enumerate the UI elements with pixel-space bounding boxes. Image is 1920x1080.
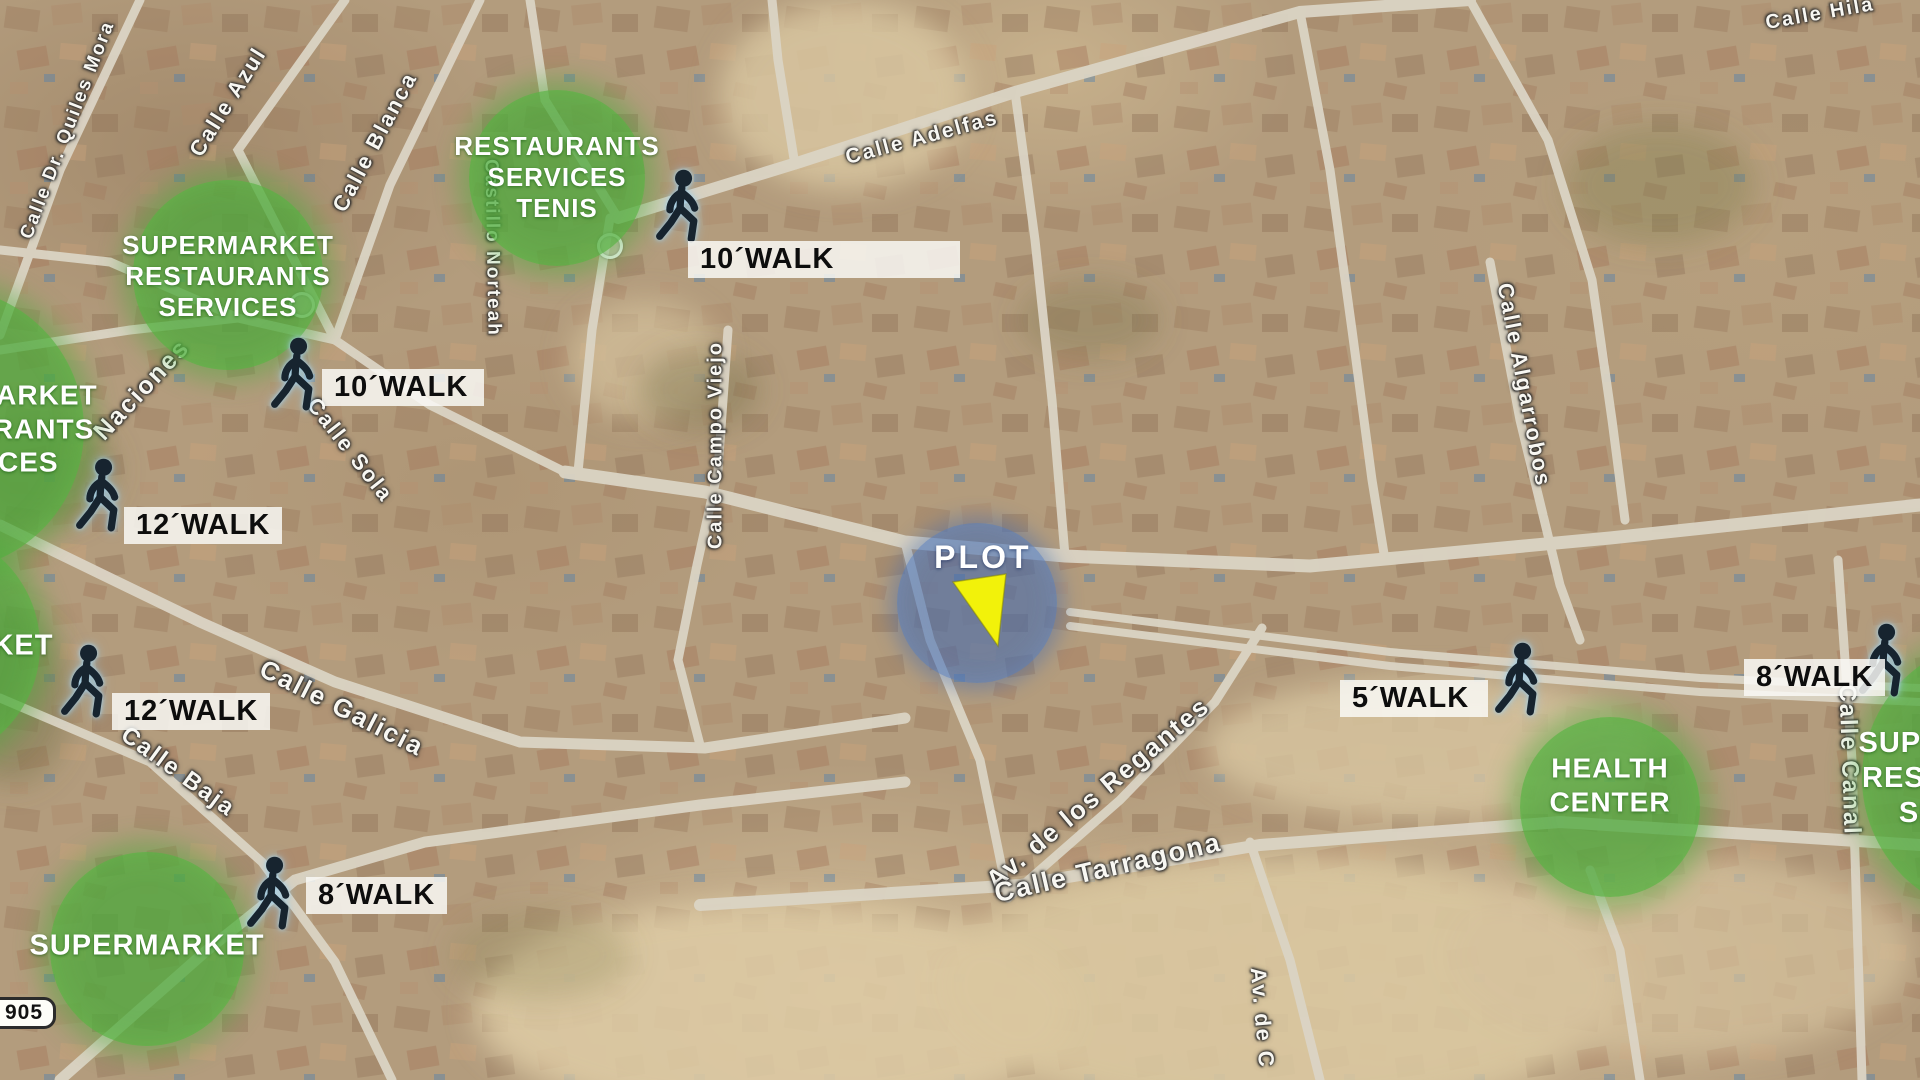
walk-10-left-label: 10´WALK (322, 369, 484, 406)
walk-10-top-label: 10´WALK (688, 241, 960, 278)
amenity-label-restaurants-tenis-nw: RESTAURANTSSERVICESTENIS (454, 131, 660, 225)
walking-person-icon (243, 850, 301, 942)
walk-8-sw-label: 8´WALK (306, 877, 447, 914)
plot-label: PLOT (934, 539, 1031, 576)
walk-8-right-label: 8´WALK (1744, 659, 1885, 696)
walk-12-left-lower-label: 12´WALK (112, 693, 270, 730)
walking-person-icon (57, 638, 115, 730)
walk-5-right-label: 5´WALK (1340, 680, 1488, 717)
road-number-sign: 905 (0, 997, 56, 1029)
plot-marker: PLOT (897, 523, 1057, 683)
amenity-circle-supermarket-sw: SUPERMARKET (50, 852, 244, 1046)
amenity-circle-health-center: HEALTHCENTER (1520, 717, 1700, 897)
amenity-label-health-center: HEALTHCENTER (1549, 751, 1670, 818)
amenity-label-supermarket-sw: SUPERMARKET (30, 929, 265, 964)
amenity-label-market-left-lower: SUPERMARKET (0, 629, 53, 664)
street-label-calle-campo-viejo: Calle Campo Viejo (705, 341, 728, 549)
walking-person-icon (1491, 636, 1549, 728)
walking-person-icon (72, 452, 130, 544)
walking-person-icon (267, 331, 325, 423)
map-canvas: PLOT Calle Dr. Quiles MoraCalle AzulCall… (0, 0, 1920, 1080)
amenity-label-supermarket-nw: SUPERMARKETRESTAURANTSSERVICES (122, 230, 334, 324)
yellow-triangle (953, 574, 1006, 646)
amenity-circle-restaurants-tenis-nw: RESTAURANTSSERVICESTENIS (469, 90, 645, 266)
walk-12-left-upper-label: 12´WALK (124, 507, 282, 544)
amenity-label-supermarket-right-edge: SUPERMARKETRESTAURANTSSERVICES (1859, 726, 1920, 830)
